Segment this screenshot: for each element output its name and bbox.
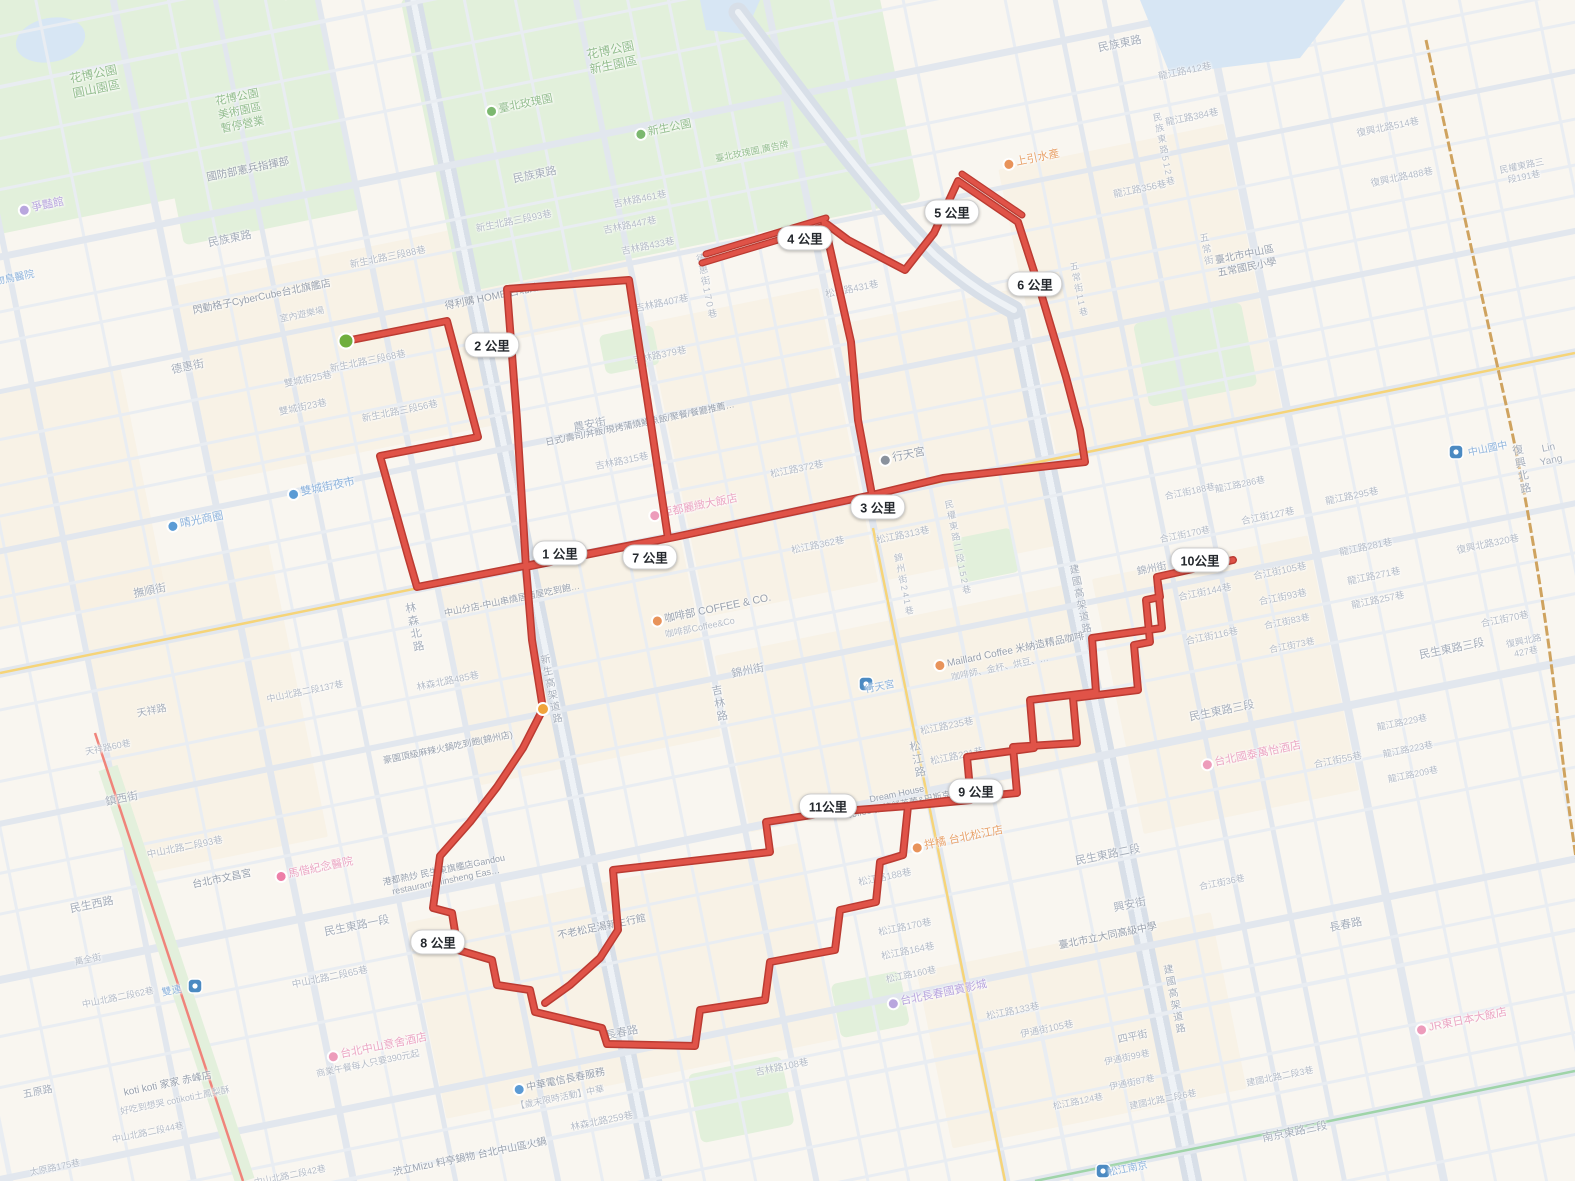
park-area [400, 0, 920, 293]
street-grid [0, 0, 1575, 1181]
map-canvas[interactable]: 花博公園 圓山園區花博公園 美術園區 暫停營業花博公園 新生園區臺北玫瑰園新生公… [0, 0, 1575, 1181]
street [1323, 0, 1575, 1181]
